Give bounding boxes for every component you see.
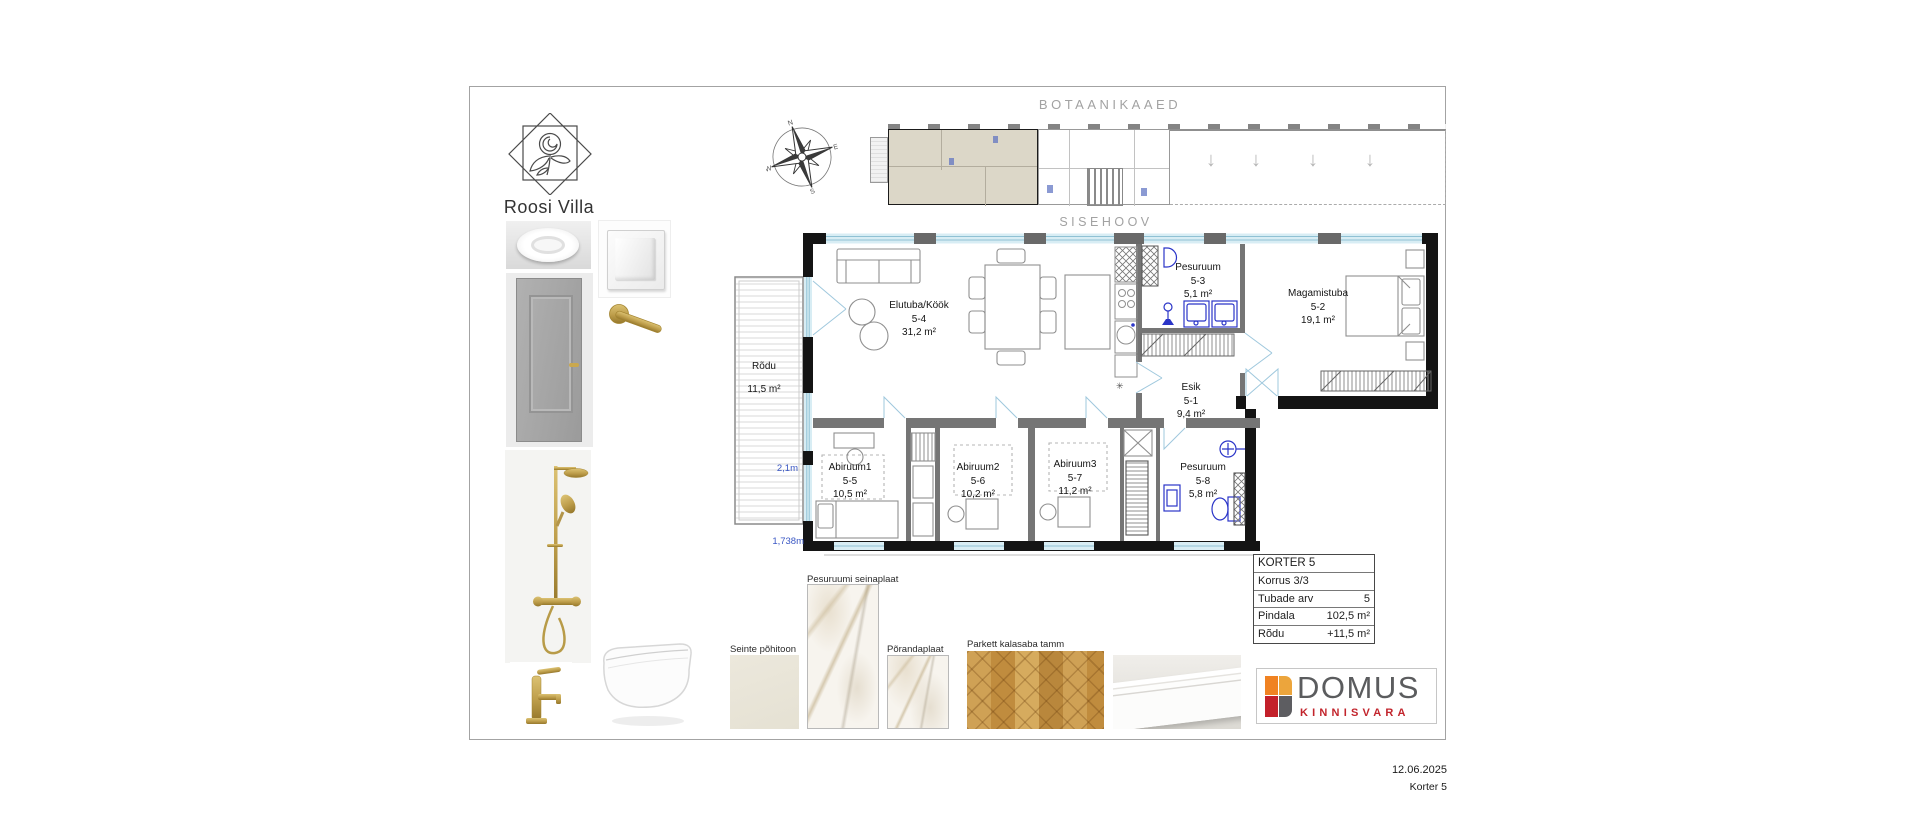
floor-plan-drawing (734, 233, 1447, 567)
toilet-photo (592, 633, 707, 731)
material-label-floortile: Põrandaplaat (887, 644, 944, 655)
downlight-hole (531, 236, 565, 254)
room-label-living: Elutuba/Köök5-431,2 m² (864, 299, 974, 340)
rose-logo-icon (506, 113, 594, 195)
room-label-aux2: Abiruum25-610,2 m² (923, 461, 1033, 502)
logo-square-red (1265, 696, 1278, 717)
keyplan-balcony (870, 137, 888, 183)
compass-e: E (833, 143, 838, 151)
table-row: Korrus 3/3 (1254, 572, 1374, 590)
material-label-walltone: Seinte põhitoon (730, 644, 796, 655)
footer-sheet-name: Korter 5 (1287, 781, 1447, 793)
kitchen-appliances (1115, 247, 1137, 377)
door-handle-icon (569, 363, 579, 367)
skirting-board (1113, 665, 1241, 729)
switch-plate (607, 230, 665, 290)
downlight-photo (506, 221, 591, 269)
keyplan-roof-terrace: ↓ ↓ ↓ ↓ (1170, 129, 1446, 205)
logo-square-orange (1265, 676, 1278, 695)
down-arrow-icon: ↓ (1308, 149, 1318, 172)
keyplan-stairs (1087, 168, 1123, 206)
switch-rocker (615, 238, 655, 280)
down-arrow-icon: ↓ (1206, 149, 1216, 172)
room-label-hall: Esik5-19,4 m² (1136, 381, 1246, 422)
down-arrow-icon: ↓ (1251, 149, 1261, 172)
down-arrow-icon: ↓ (1365, 149, 1375, 172)
light-switch-photo (598, 220, 671, 298)
keyplan-neighbour-apartments (1038, 129, 1170, 205)
table-row: Pindala102,5 m² (1254, 607, 1374, 625)
footer-date: 12.06.2025 (1287, 764, 1447, 776)
apartment-info-table: KORTER 5 Korrus 3/3 Tubade arv5 Pindala1… (1253, 554, 1375, 644)
logo-square-grey (1279, 696, 1292, 717)
room-label-bath2: Pesuruum5-85,8 m² (1148, 461, 1258, 502)
skirting-board-swatch (1113, 655, 1241, 729)
bathroom-tile-swatch (807, 584, 879, 729)
parquet-swatch (967, 651, 1104, 729)
door-leaf (516, 278, 582, 442)
shower-set-photo (505, 450, 591, 663)
courtyard-label: SISEHOOV (1026, 215, 1186, 229)
compass-rose-icon: N E S W (766, 117, 838, 195)
door-panel (529, 295, 573, 413)
door-lever-photo (600, 299, 671, 351)
compass-n: N (787, 119, 794, 127)
interior-door-photo (506, 273, 593, 447)
table-row: KORTER 5 (1254, 555, 1374, 572)
table-row: Tubade arv5 (1254, 590, 1374, 608)
dimension-width: 2,1m (758, 463, 798, 474)
agency-name: DOMUS (1297, 670, 1420, 706)
basin-faucet-photo (510, 662, 572, 728)
logo-square-amber (1279, 676, 1292, 695)
balcony-label: Rõdu11,5 m² (734, 355, 794, 401)
room-label-aux1: Abiruum15-510,5 m² (795, 461, 905, 502)
dimension-depth: 1,738m (758, 536, 804, 547)
room-label-bedroom: Magamistuba5-219,1 m² (1263, 287, 1373, 328)
compass-s: S (809, 188, 816, 195)
agency-tagline: KINNISVARA (1300, 707, 1410, 719)
floor-plan: Elutuba/Köök5-431,2 m² Pesuruum5-35,1 m²… (734, 233, 1447, 567)
room-label-aux3: Abiruum35-711,2 m² (1020, 458, 1130, 499)
page: Roosi Villa (0, 0, 1920, 833)
floor-tile-swatch (887, 655, 949, 729)
garden-label: BOTAANIKAAED (1010, 97, 1210, 112)
agency-logo: DOMUS KINNISVARA (1256, 668, 1437, 724)
table-row: Rõdu+11,5 m² (1254, 625, 1374, 643)
kitchen-symbol-icon: ✳ (1116, 381, 1124, 392)
brand-title: Roosi Villa (484, 197, 614, 218)
presentation-sheet: Roosi Villa (469, 86, 1446, 740)
keyplan-highlighted-apartment (888, 129, 1038, 205)
room-label-laundry: Pesuruum5-35,1 m² (1143, 261, 1253, 302)
material-label-parquet: Parkett kalasaba tamm (967, 639, 1064, 650)
wall-tone-swatch (730, 655, 799, 729)
